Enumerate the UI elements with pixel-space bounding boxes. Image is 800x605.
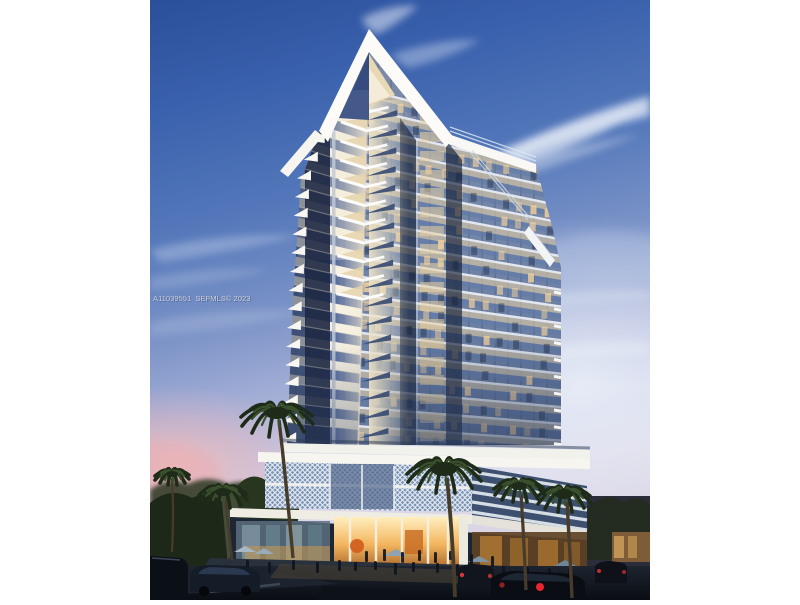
svg-text:A11039551 SEFMLS© 2023: A11039551 SEFMLS© 2023 xyxy=(153,294,251,303)
